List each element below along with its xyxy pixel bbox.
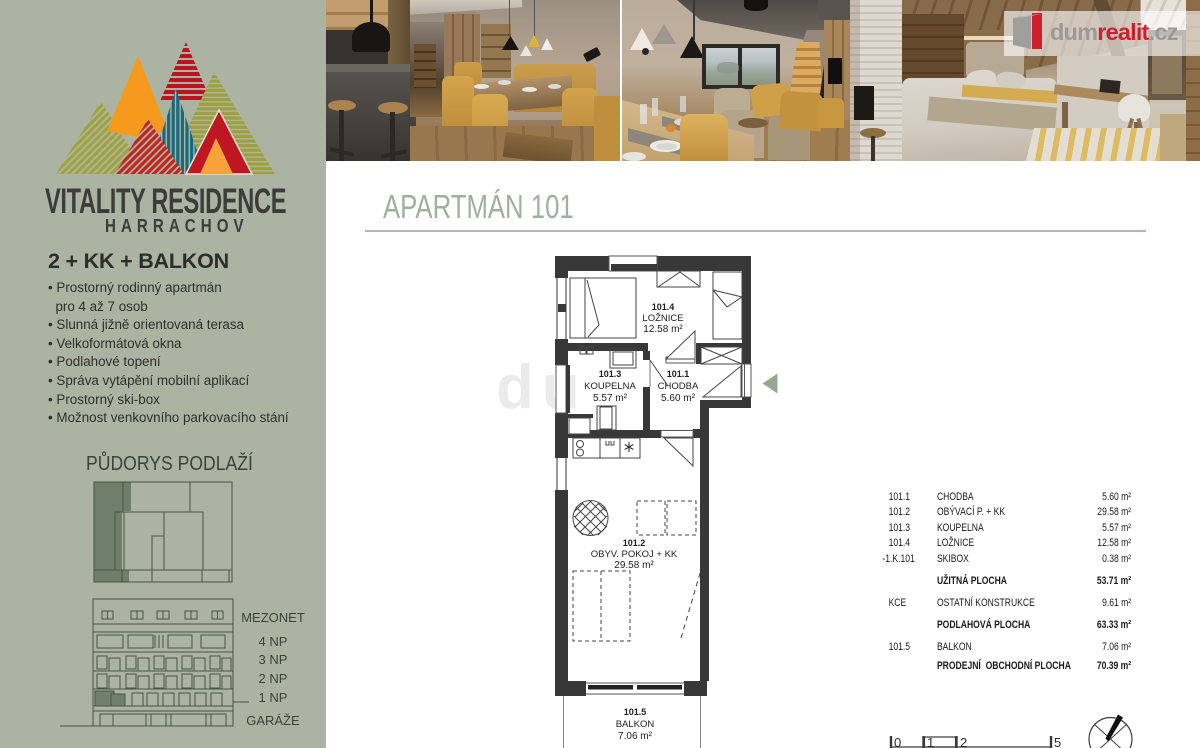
svg-text:4 NP: 4 NP [259, 634, 288, 649]
svg-text:1 NP: 1 NP [259, 690, 288, 705]
svg-text:101.5: 101.5 [624, 707, 647, 717]
svg-text:BALKON: BALKON [616, 719, 655, 730]
svg-text:5.57 m²: 5.57 m² [593, 393, 628, 404]
svg-text:101.3: 101.3 [599, 369, 622, 379]
svg-text:7.06 m²: 7.06 m² [618, 731, 653, 742]
svg-text:101.1: 101.1 [667, 369, 690, 379]
svg-text:2 NP: 2 NP [259, 671, 288, 686]
svg-text:12.58 m²: 12.58 m² [643, 324, 683, 335]
svg-text:0: 0 [894, 735, 901, 748]
svg-text:MEZONET: MEZONET [241, 610, 305, 625]
svg-text:2: 2 [960, 735, 967, 748]
svg-text:OBYV. POKOJ + KK: OBYV. POKOJ + KK [591, 549, 678, 560]
svg-text:KOUPELNA: KOUPELNA [584, 381, 636, 392]
svg-text:1: 1 [927, 735, 934, 748]
svg-text:CHODBA: CHODBA [658, 381, 699, 392]
svg-text:GARÁŽE: GARÁŽE [246, 713, 300, 728]
svg-text:29.58 m²: 29.58 m² [614, 560, 654, 571]
svg-text:101.4: 101.4 [652, 302, 675, 312]
svg-text:3 NP: 3 NP [259, 652, 288, 667]
svg-text:101.2: 101.2 [623, 538, 646, 548]
svg-text:5: 5 [1054, 735, 1061, 748]
svg-text:5.60 m²: 5.60 m² [661, 393, 696, 404]
svg-text:LOŽNICE: LOŽNICE [642, 313, 683, 324]
